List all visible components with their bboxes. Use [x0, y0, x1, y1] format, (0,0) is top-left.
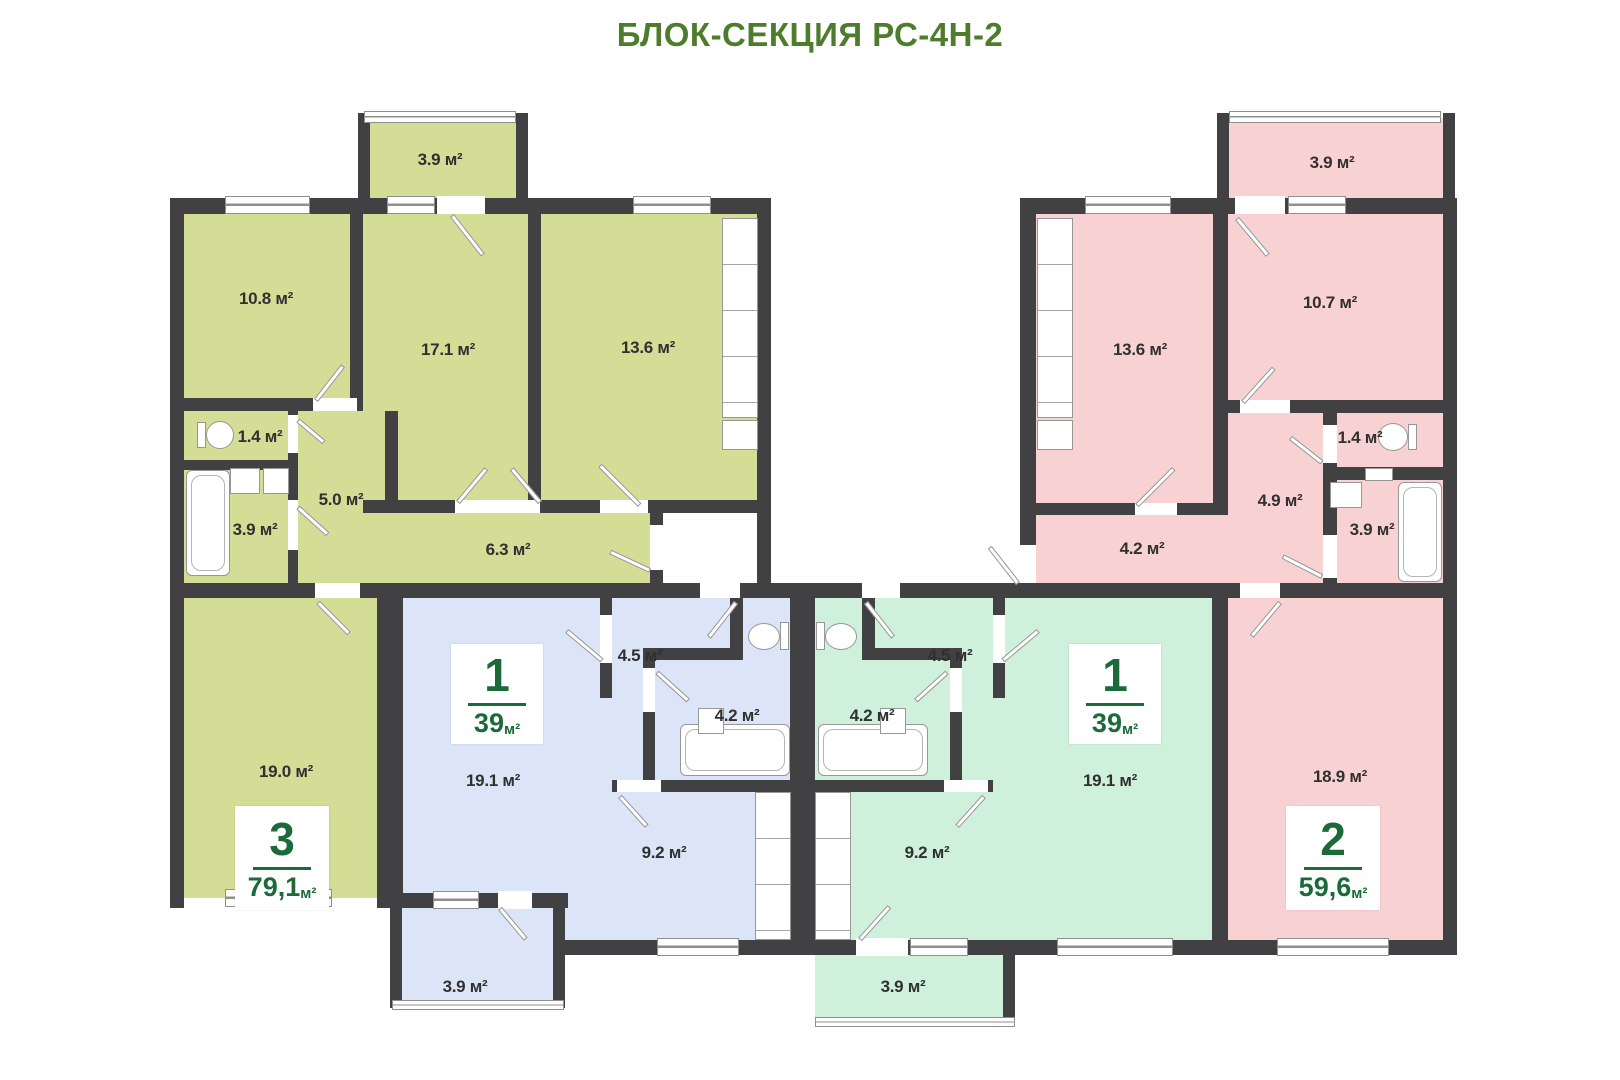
door-opening	[944, 780, 988, 792]
badge-divider	[1086, 703, 1144, 706]
room-area-label: 3.9 м²	[1350, 520, 1395, 540]
door-opening	[643, 668, 655, 712]
apt3-total-area: 79,1	[248, 872, 301, 902]
wall	[170, 198, 184, 908]
wall	[377, 583, 403, 908]
room-area-label: 10.7 м²	[1303, 293, 1357, 313]
door-opening	[1240, 400, 1290, 413]
floor-plan: БЛОК-СЕКЦИЯ РС-4Н-2	[0, 0, 1620, 1080]
room-area-label: 4.2 м²	[1120, 539, 1165, 559]
apt1-left-rooms-count: 1	[484, 652, 510, 698]
wall	[363, 500, 770, 513]
washer	[230, 468, 260, 494]
room-area-label: 13.6 м²	[621, 338, 675, 358]
door-opening	[1240, 583, 1280, 598]
wall	[358, 113, 370, 213]
door-opening	[856, 938, 908, 956]
window	[1085, 196, 1171, 214]
window	[392, 1000, 564, 1010]
window	[1057, 938, 1173, 956]
bathtub	[1398, 482, 1442, 582]
room-area-label: 4.2 м²	[715, 706, 760, 726]
room-area-label: 4.5 м²	[618, 646, 663, 666]
room-area-label: 3.9 м²	[443, 977, 488, 997]
wall	[528, 213, 541, 513]
wall	[553, 900, 565, 1008]
room-area-label: 19.1 м²	[1083, 771, 1137, 791]
badge-divider	[468, 703, 526, 706]
toilet	[816, 622, 825, 650]
door-opening	[1020, 545, 1036, 583]
kitchen-counter	[722, 218, 758, 418]
room-area-label: 3.9 м²	[1310, 153, 1355, 173]
page-title: БЛОК-СЕКЦИЯ РС-4Н-2	[0, 16, 1620, 54]
toilet	[780, 622, 789, 650]
bathtub	[818, 724, 928, 776]
door-opening	[1235, 196, 1285, 214]
room-area-label: 1.4 м²	[1338, 428, 1383, 448]
wall	[350, 213, 363, 398]
window	[433, 891, 479, 909]
room-area-label: 9.2 м²	[642, 843, 687, 863]
toilet	[206, 421, 234, 449]
room-area-label: 4.5 м²	[928, 646, 973, 666]
wall	[1443, 113, 1455, 213]
window	[633, 196, 711, 214]
room-area-label: 3.9 м²	[418, 150, 463, 170]
wall	[1217, 113, 1229, 213]
apt2-badge: 2 59,6м²	[1286, 806, 1380, 910]
window	[1277, 938, 1389, 956]
sink	[263, 468, 289, 494]
apt2-total-area: 59,6	[1299, 872, 1352, 902]
window	[364, 111, 516, 123]
wall	[385, 411, 398, 506]
wall	[1020, 198, 1036, 598]
door-opening	[437, 196, 485, 214]
door-opening	[862, 583, 900, 598]
room-area-label: 4.9 м²	[1258, 491, 1303, 511]
room-area-label: 5.0 м²	[319, 490, 364, 510]
washer	[1330, 482, 1362, 508]
kitchen-counter	[815, 792, 851, 940]
stove	[1037, 420, 1073, 450]
door-opening	[617, 780, 661, 792]
door-opening	[1135, 503, 1177, 515]
window	[1288, 196, 1346, 214]
wall	[1213, 213, 1228, 515]
room-area-label: 19.0 м²	[259, 762, 313, 782]
door-opening	[455, 500, 540, 513]
wall	[1003, 950, 1015, 1027]
wall	[1443, 198, 1457, 955]
room-area-label: 3.9 м²	[233, 520, 278, 540]
apt1-left-total-area: 39	[474, 708, 504, 738]
apt3-rooms-count: 3	[269, 816, 295, 862]
door-opening	[498, 891, 532, 909]
apt1-right-total-area: 39	[1092, 708, 1122, 738]
room-area-label: 13.6 м²	[1113, 340, 1167, 360]
room-area-label: 3.9 м²	[881, 977, 926, 997]
window	[387, 196, 435, 214]
area-unit: м²	[300, 885, 316, 902]
door-opening	[1323, 425, 1337, 463]
toilet	[197, 422, 206, 448]
room-area-label: 6.3 м²	[486, 540, 531, 560]
wall	[1212, 583, 1228, 955]
window	[815, 1017, 1015, 1027]
wall	[390, 900, 402, 1008]
window	[910, 938, 968, 956]
door-opening	[700, 583, 740, 598]
door-opening	[1323, 535, 1337, 578]
toilet	[748, 623, 780, 650]
room-area-label: 10.8 м²	[239, 289, 293, 309]
stairwell-notch	[663, 513, 763, 588]
toilet	[825, 623, 857, 650]
door-opening	[600, 615, 612, 663]
wall	[1035, 503, 1213, 515]
area-unit: м²	[1122, 721, 1138, 738]
apt1-left-badge: 1 39м²	[451, 644, 543, 744]
window	[1229, 111, 1441, 123]
badge-divider	[253, 867, 311, 870]
kitchen-counter	[1037, 218, 1073, 418]
sink	[1365, 468, 1393, 481]
badge-divider	[1304, 867, 1362, 870]
door-opening	[315, 583, 360, 598]
apt3-badge: 3 79,1м²	[235, 806, 329, 910]
toilet	[1408, 424, 1417, 450]
wall	[516, 113, 528, 213]
window	[657, 938, 739, 956]
area-unit: м²	[504, 721, 520, 738]
apt1-right-badge: 1 39м²	[1069, 644, 1161, 744]
window	[225, 196, 310, 214]
apt2-rooms-count: 2	[1320, 816, 1346, 862]
room-area-label: 4.2 м²	[850, 706, 895, 726]
door	[988, 546, 1020, 585]
kitchen-counter	[755, 792, 791, 940]
wall	[790, 583, 815, 955]
apt1-right-rooms-count: 1	[1102, 652, 1128, 698]
room-area-label: 18.9 м²	[1313, 767, 1367, 787]
room-area-label: 17.1 м²	[421, 340, 475, 360]
stove	[722, 420, 758, 450]
room-area-label: 9.2 м²	[905, 843, 950, 863]
wall	[390, 893, 568, 908]
area-unit: м²	[1351, 885, 1367, 902]
door-opening	[650, 525, 663, 570]
room-area-label: 19.1 м²	[466, 771, 520, 791]
door-opening	[950, 668, 962, 712]
room-area-label: 1.4 м²	[238, 427, 283, 447]
bathtub	[680, 724, 790, 776]
wall	[757, 198, 771, 588]
bathtub	[186, 470, 230, 576]
